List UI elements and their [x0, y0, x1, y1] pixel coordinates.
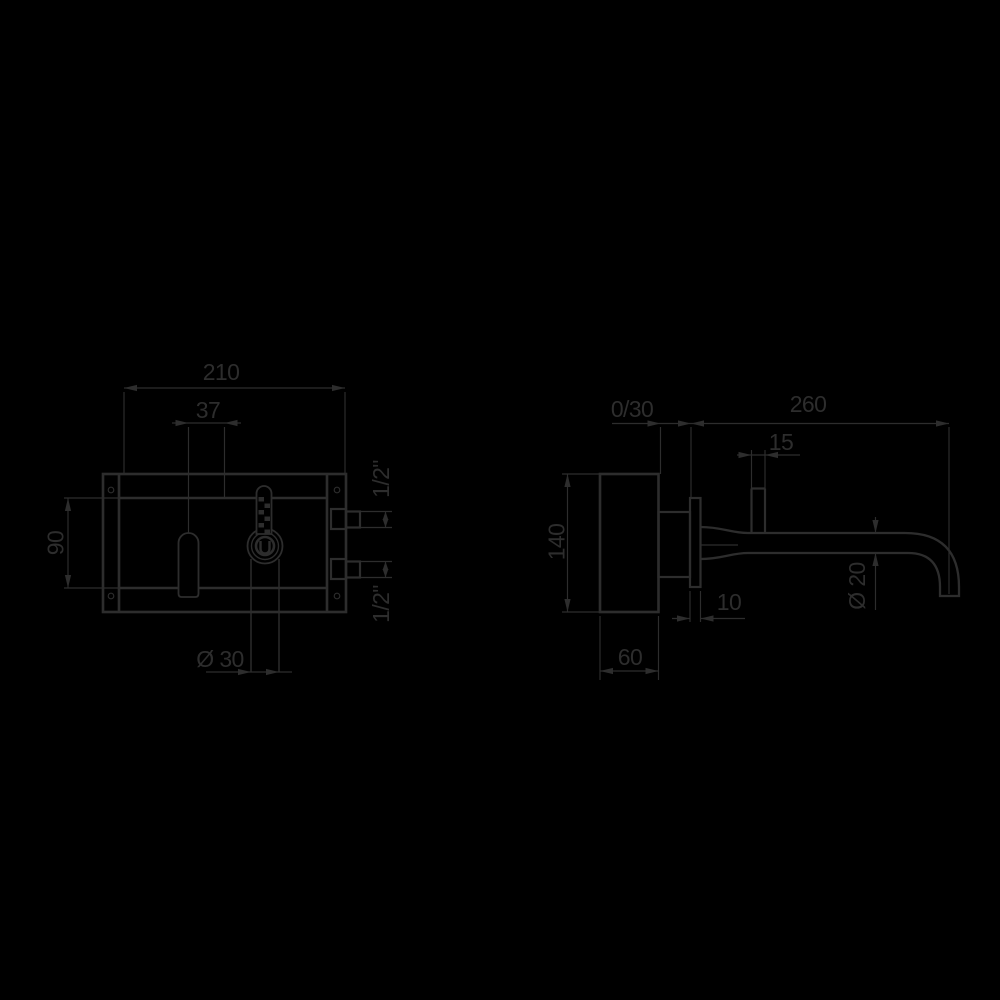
dim-label-210: 210: [203, 359, 240, 385]
dim-label-d20: Ø 20: [844, 562, 870, 609]
dim-label-d30: Ø 30: [196, 646, 243, 672]
dim-label-half-inch-bottom: 1/2": [368, 585, 394, 623]
dim-label-90: 90: [43, 531, 69, 555]
drawing-background: [0, 0, 1000, 1000]
dim-label-140: 140: [544, 524, 570, 561]
technical-drawing: 210 37 90 Ø 30 1/2: [0, 0, 1000, 1000]
dim-label-15: 15: [769, 429, 793, 455]
dim-label-260: 260: [790, 391, 827, 417]
dim-label-half-inch-top: 1/2": [368, 460, 394, 498]
dim-label-0-30: 0/30: [611, 396, 653, 422]
dim-label-10: 10: [717, 589, 741, 615]
dim-label-37: 37: [196, 397, 220, 423]
dim-label-60: 60: [618, 644, 642, 670]
spout-slot: [179, 533, 199, 597]
